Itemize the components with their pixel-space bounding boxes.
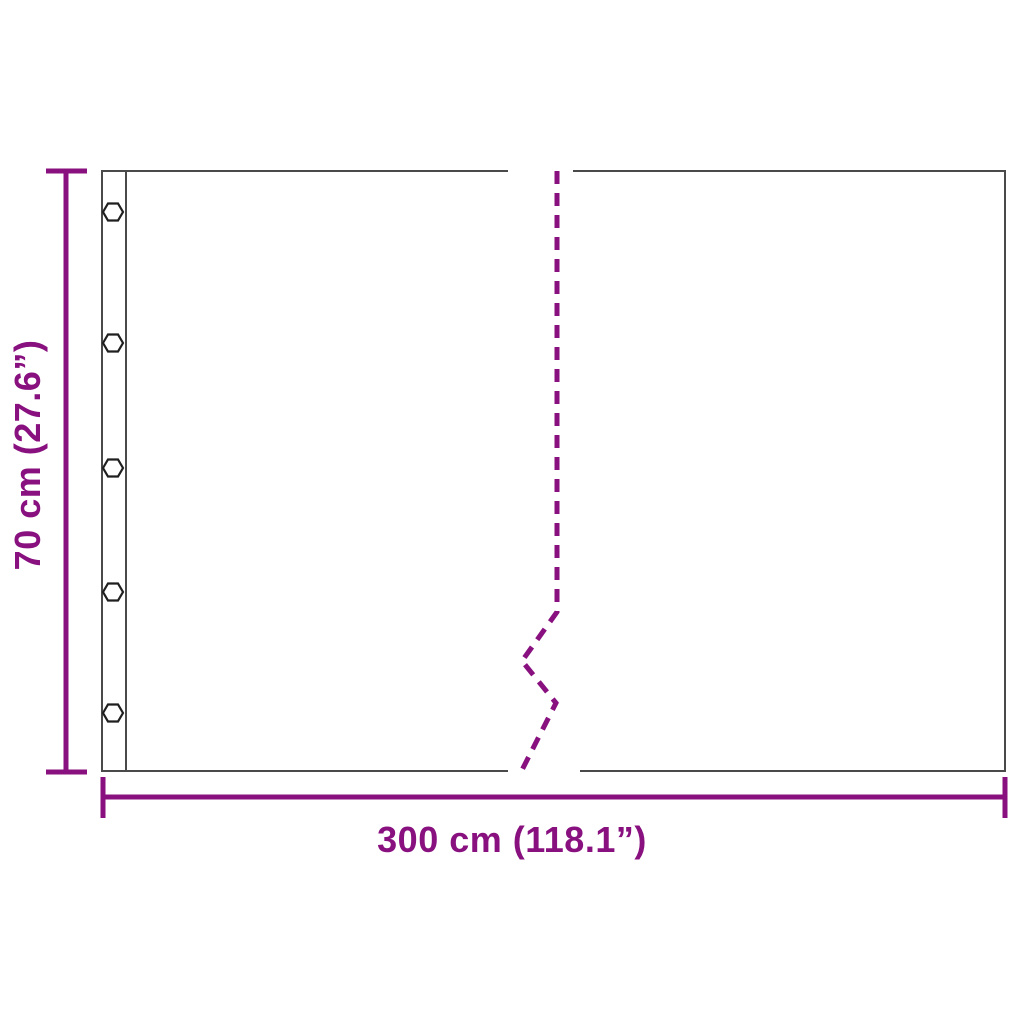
panel-left-section	[102, 171, 508, 771]
height-dimension-line	[46, 171, 87, 772]
eyelet-icon	[103, 460, 123, 477]
width-dimension-line	[103, 777, 1005, 818]
eyelet-icon	[103, 584, 123, 601]
eyelet-icon	[103, 705, 123, 722]
panel-right-section	[573, 171, 1005, 771]
diagram-canvas	[0, 0, 1024, 1024]
height-dimension-label: 70 cm (27.6”)	[6, 335, 50, 575]
break-line	[521, 171, 557, 772]
eyelet-icon	[103, 204, 123, 221]
panel-outline	[102, 171, 1005, 771]
product-dimension-diagram: 70 cm (27.6”) 300 cm (118.1”)	[0, 0, 1024, 1024]
width-dimension-label: 300 cm (118.1”)	[0, 818, 1024, 862]
eyelet-strip	[103, 204, 123, 722]
eyelet-icon	[103, 335, 123, 352]
